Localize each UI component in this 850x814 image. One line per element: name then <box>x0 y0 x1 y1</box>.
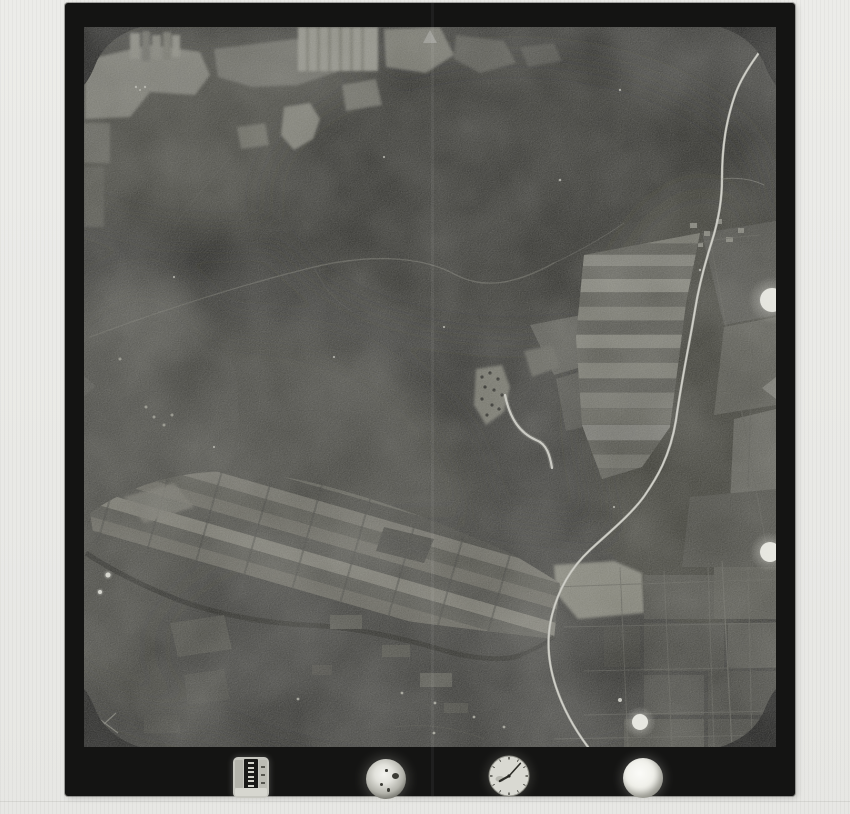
grain-texture <box>84 27 776 747</box>
level-mark <box>387 788 390 792</box>
film-print <box>65 3 795 796</box>
image-area <box>84 27 776 747</box>
clock-face <box>487 754 531 798</box>
level-mark <box>392 773 399 779</box>
paper-crease-line <box>0 801 850 802</box>
clock-instrument <box>487 754 531 798</box>
bubble-level-instrument <box>366 759 406 799</box>
counter-base <box>235 788 267 796</box>
counter-digit-strip <box>244 759 258 789</box>
counter-left-column <box>235 760 243 788</box>
level-mark <box>380 783 383 786</box>
counter-right-column <box>259 760 267 788</box>
frame-counter-instrument <box>233 757 269 798</box>
paper-background <box>0 0 850 814</box>
aerial-terrain <box>84 27 776 747</box>
level-mark <box>385 769 388 772</box>
blank-dial-instrument <box>623 758 663 798</box>
